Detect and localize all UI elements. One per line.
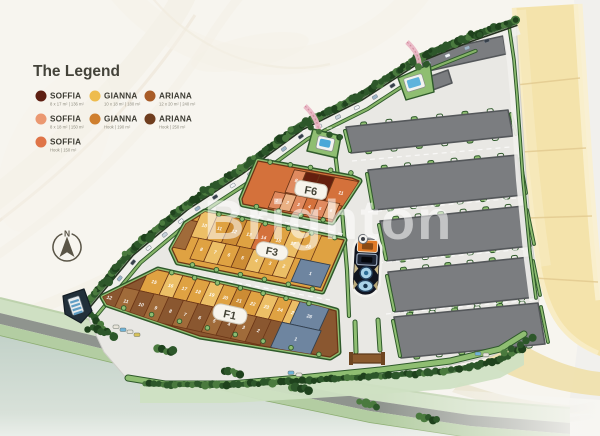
svg-text:Hook | 250 m²: Hook | 250 m² [159,125,186,130]
svg-text:SOFFIA: SOFFIA [50,138,81,147]
svg-text:GIANNA: GIANNA [104,92,138,101]
svg-text:12 x 20 m² | 240 m²: 12 x 20 m² | 240 m² [159,102,196,107]
svg-text:Hook | 190 m²: Hook | 190 m² [104,125,131,130]
svg-text:SOFFIA: SOFFIA [50,92,81,101]
svg-text:ARIANA: ARIANA [159,115,192,124]
svg-text:Hook | 150 m²: Hook | 150 m² [50,148,77,153]
svg-text:The Legend: The Legend [33,63,120,80]
svg-text:8 x 17 m² | 136 m²: 8 x 17 m² | 136 m² [50,102,85,107]
svg-text:SOFFIA: SOFFIA [50,115,81,124]
svg-text:8 x 18 m² | 150 m²: 8 x 18 m² | 150 m² [50,125,85,130]
svg-text:10 x 18 m² | 180 m²: 10 x 18 m² | 180 m² [104,102,141,107]
svg-text:GIANNA: GIANNA [104,115,138,124]
svg-text:ARIANA: ARIANA [159,92,192,101]
svg-text:Brighton: Brighton [204,188,453,251]
